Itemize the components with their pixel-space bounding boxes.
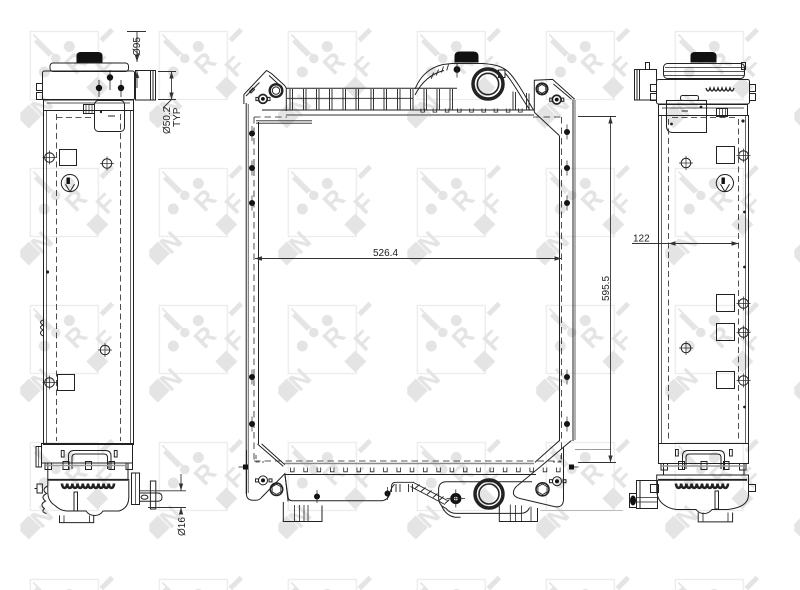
svg-text:Ø95: Ø95 xyxy=(132,37,143,56)
svg-text:122: 122 xyxy=(633,234,650,245)
svg-text:595.5: 595.5 xyxy=(601,276,612,301)
svg-text:Ø16: Ø16 xyxy=(177,517,188,536)
svg-text:TYP: TYP xyxy=(172,107,183,127)
svg-text:526.4: 526.4 xyxy=(373,248,398,259)
